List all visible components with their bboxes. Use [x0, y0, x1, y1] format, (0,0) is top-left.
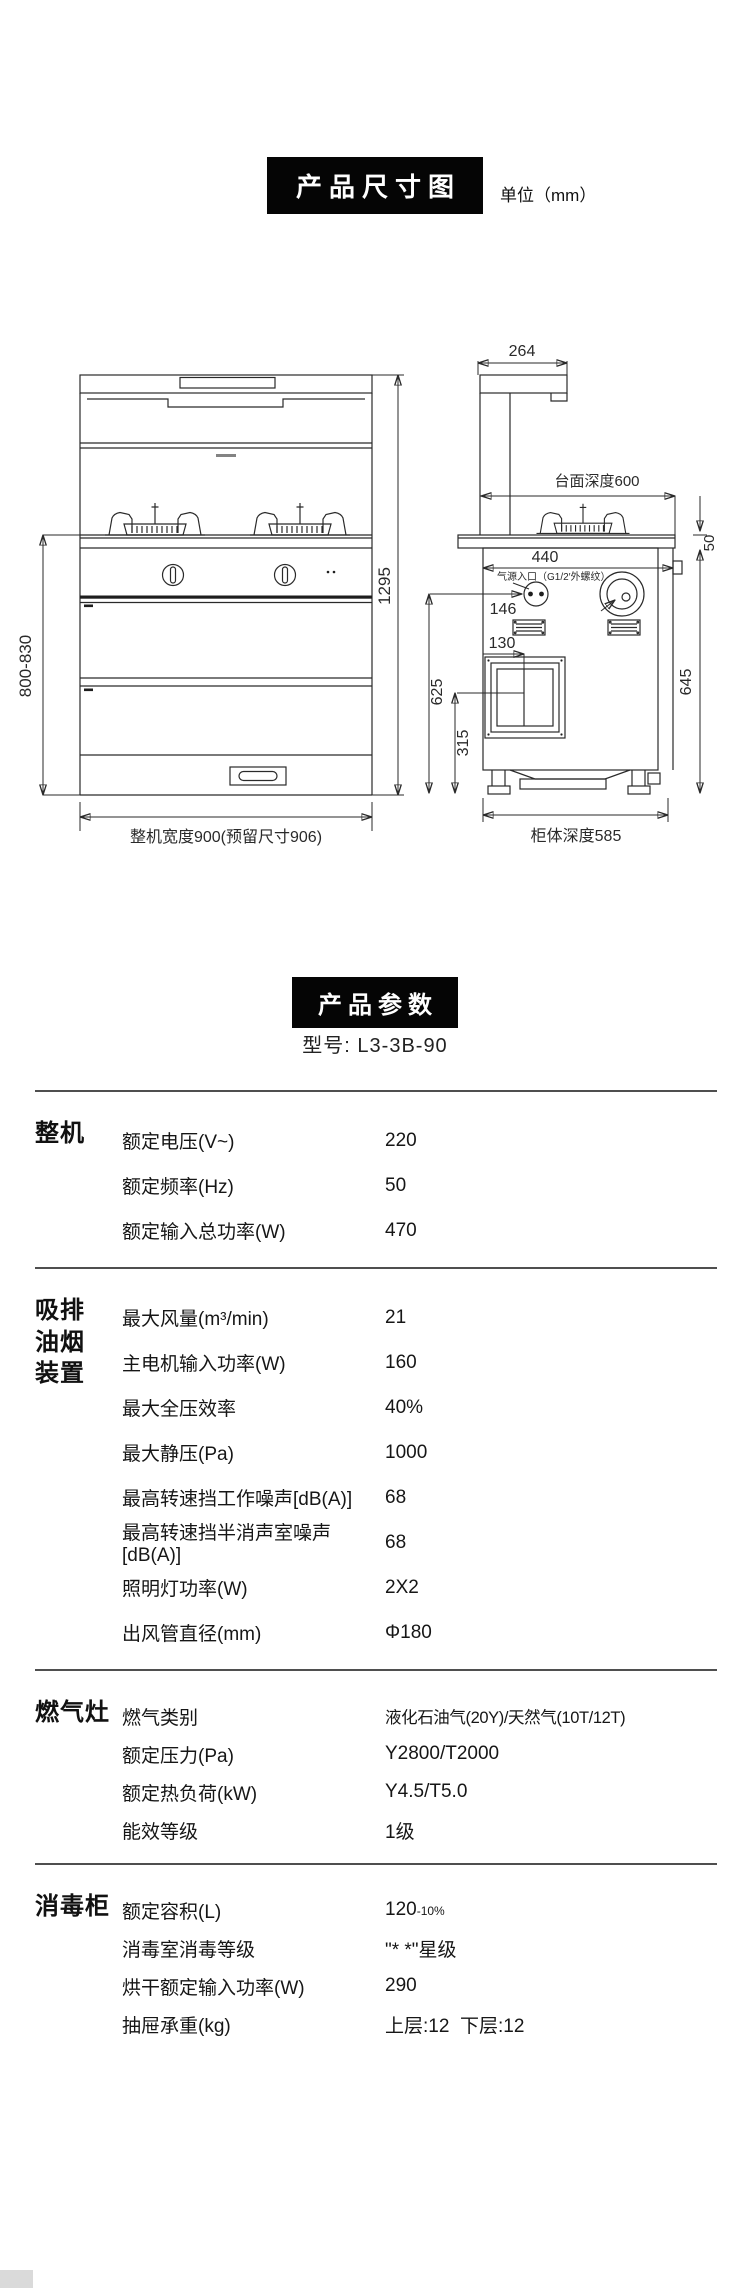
spec-label: 抽屉承重(kg)	[122, 2011, 385, 2038]
spec-value: Φ180	[385, 1622, 717, 1644]
spec-value: 40%	[385, 1397, 717, 1419]
front-view: 800-830 1295 整机宽度900(预留尺寸906)	[16, 375, 404, 846]
spec-label: 消毒室消毒等级	[122, 1935, 385, 1962]
spec-value: 120-10%	[385, 1899, 717, 1921]
spec-label: 出风管直径(mm)	[122, 1619, 385, 1646]
section-rows: 燃气类别液化石油气(20Y)/天然气(10T/12T)额定压力(Pa)Y2800…	[122, 1697, 717, 1849]
spec-row: 额定压力(Pa)Y2800/T2000	[122, 1735, 717, 1773]
spec-value: 160	[385, 1352, 717, 1374]
spec-row: 消毒室消毒等级"* *"星级	[122, 1929, 717, 1967]
spec-row: 照明灯功率(W)2X2	[122, 1565, 717, 1610]
dim-cabinet-depth: 柜体深度585	[531, 827, 622, 845]
spec-value: 68	[385, 1487, 717, 1509]
spec-label: 额定热负荷(kW)	[122, 1779, 385, 1806]
spec-value: 21	[385, 1307, 717, 1329]
section-name: 吸排油烟装置	[35, 1295, 91, 1655]
spec-row: 最大风量(m³/min)21	[122, 1295, 717, 1340]
spec-row: 额定频率(Hz)50	[122, 1163, 717, 1208]
spec-table: 整机额定电压(V~)220额定频率(Hz)50额定输入总功率(W)470吸排油烟…	[35, 1090, 717, 2057]
spec-row: 最高转速挡工作噪声[dB(A)]68	[122, 1475, 717, 1520]
spec-value: 50	[385, 1175, 717, 1197]
gas-inlet-label: 气源入口（G1/2′外螺纹）	[497, 570, 611, 583]
spec-label: 照明灯功率(W)	[122, 1574, 385, 1601]
dim-back-width: 440	[532, 549, 559, 566]
dimension-diagram: 800-830 1295 整机宽度900(预留尺寸906) 264 台面深度60…	[0, 230, 750, 880]
spec-row: 抽屉承重(kg)上层:12 下层:12	[122, 2005, 717, 2043]
spec-value: 1级	[385, 1817, 717, 1844]
spec-row: 最高转速挡半消声室噪声[dB(A)]68	[122, 1520, 717, 1565]
spec-label: 额定压力(Pa)	[122, 1741, 385, 1768]
dim-hood-top-depth: 264	[509, 343, 536, 360]
spec-label: 最高转速挡工作噪声[dB(A)]	[122, 1484, 385, 1511]
dim-overall-width: 整机宽度900(预留尺寸906)	[130, 828, 322, 846]
spec-value: 液化石油气(20Y)/天然气(10T/12T)	[385, 1704, 717, 1728]
spec-section: 燃气灶燃气类别液化石油气(20Y)/天然气(10T/12T)额定压力(Pa)Y2…	[35, 1671, 717, 1863]
spec-label: 能效等级	[122, 1817, 385, 1844]
dim-panel-height: 315	[455, 730, 472, 757]
section-name: 消毒柜	[35, 1891, 122, 2043]
dim-gas-inlet-offset: 146	[490, 601, 517, 618]
spec-row: 主电机输入功率(W)160	[122, 1340, 717, 1385]
spec-value: Y4.5/T5.0	[385, 1781, 717, 1803]
dim-cabinet-height: 645	[678, 669, 695, 696]
spec-label: 额定频率(Hz)	[122, 1172, 385, 1199]
spec-row: 额定容积(L)120-10%	[122, 1891, 717, 1929]
spec-sections: 整机额定电压(V~)220额定频率(Hz)50额定输入总功率(W)470吸排油烟…	[35, 1090, 717, 2057]
model-number: 型号: L3-3B-90	[0, 1029, 750, 1058]
spec-value: 2X2	[385, 1577, 717, 1599]
spec-row: 额定输入总功率(W)470	[122, 1208, 717, 1253]
dim-front-height-range: 800-830	[16, 635, 35, 697]
dim-vent-offset: 130	[489, 635, 516, 652]
spec-row: 额定热负荷(kW)Y4.5/T5.0	[122, 1773, 717, 1811]
dim-counter-overhang: 50	[701, 535, 718, 552]
bottom-edge-strip	[0, 2270, 33, 2288]
spec-row: 能效等级1级	[122, 1811, 717, 1849]
unit-note: 单位（mm）	[500, 181, 596, 206]
section-rows: 额定容积(L)120-10%消毒室消毒等级"* *"星级烘干额定输入功率(W)2…	[122, 1891, 717, 2043]
spec-value-sub: -10%	[417, 1904, 445, 1918]
spec-value: "* *"星级	[385, 1935, 717, 1962]
spec-label: 额定容积(L)	[122, 1897, 385, 1924]
spec-label: 额定电压(V~)	[122, 1127, 385, 1154]
spec-value: 290	[385, 1975, 717, 1997]
spec-row: 出风管直径(mm)Φ180	[122, 1610, 717, 1655]
spec-row: 最大静压(Pa)1000	[122, 1430, 717, 1475]
spec-label: 燃气类别	[122, 1703, 385, 1730]
dimension-diagram-title: 产品尺寸图	[267, 157, 483, 214]
product-detail-page: 产品尺寸图 单位（mm）	[0, 0, 750, 2288]
spec-value: 220	[385, 1130, 717, 1152]
spec-value: 1000	[385, 1442, 717, 1464]
dim-total-height: 1295	[375, 567, 394, 605]
spec-section: 消毒柜额定容积(L)120-10%消毒室消毒等级"* *"星级烘干额定输入功率(…	[35, 1865, 717, 2057]
spec-label: 主电机输入功率(W)	[122, 1349, 385, 1376]
spec-value: Y2800/T2000	[385, 1743, 717, 1765]
spec-value: 68	[385, 1532, 717, 1554]
spec-label: 最大全压效率	[122, 1394, 385, 1421]
spec-section: 整机额定电压(V~)220额定频率(Hz)50额定输入总功率(W)470	[35, 1092, 717, 1267]
spec-value: 470	[385, 1220, 717, 1242]
spec-row: 最大全压效率40%	[122, 1385, 717, 1430]
spec-label: 额定输入总功率(W)	[122, 1217, 385, 1244]
dim-counter-depth: 台面深度600	[554, 473, 639, 490]
spec-row: 烘干额定输入功率(W)290	[122, 1967, 717, 2005]
spec-section: 吸排油烟装置最大风量(m³/min)21主电机输入功率(W)160最大全压效率4…	[35, 1269, 717, 1669]
section-rows: 最大风量(m³/min)21主电机输入功率(W)160最大全压效率40%最大静压…	[122, 1295, 717, 1655]
section-rows: 额定电压(V~)220额定频率(Hz)50额定输入总功率(W)470	[122, 1118, 717, 1253]
spec-label: 最大静压(Pa)	[122, 1439, 385, 1466]
side-view: 264 台面深度600 50 440 气源入口（G1/2′外螺纹） 146	[429, 343, 718, 845]
spec-label: 最高转速挡半消声室噪声[dB(A)]	[122, 1518, 385, 1567]
spec-label: 最大风量(m³/min)	[122, 1304, 385, 1331]
product-params-title: 产品参数	[292, 977, 458, 1028]
spec-row: 额定电压(V~)220	[122, 1118, 717, 1163]
section-name: 燃气灶	[35, 1697, 122, 1849]
spec-row: 燃气类别液化石油气(20Y)/天然气(10T/12T)	[122, 1697, 717, 1735]
dim-inlet-height: 625	[429, 679, 446, 706]
spec-value: 上层:12 下层:12	[385, 2011, 717, 2038]
section-name: 整机	[35, 1118, 122, 1253]
spec-label: 烘干额定输入功率(W)	[122, 1973, 385, 2000]
